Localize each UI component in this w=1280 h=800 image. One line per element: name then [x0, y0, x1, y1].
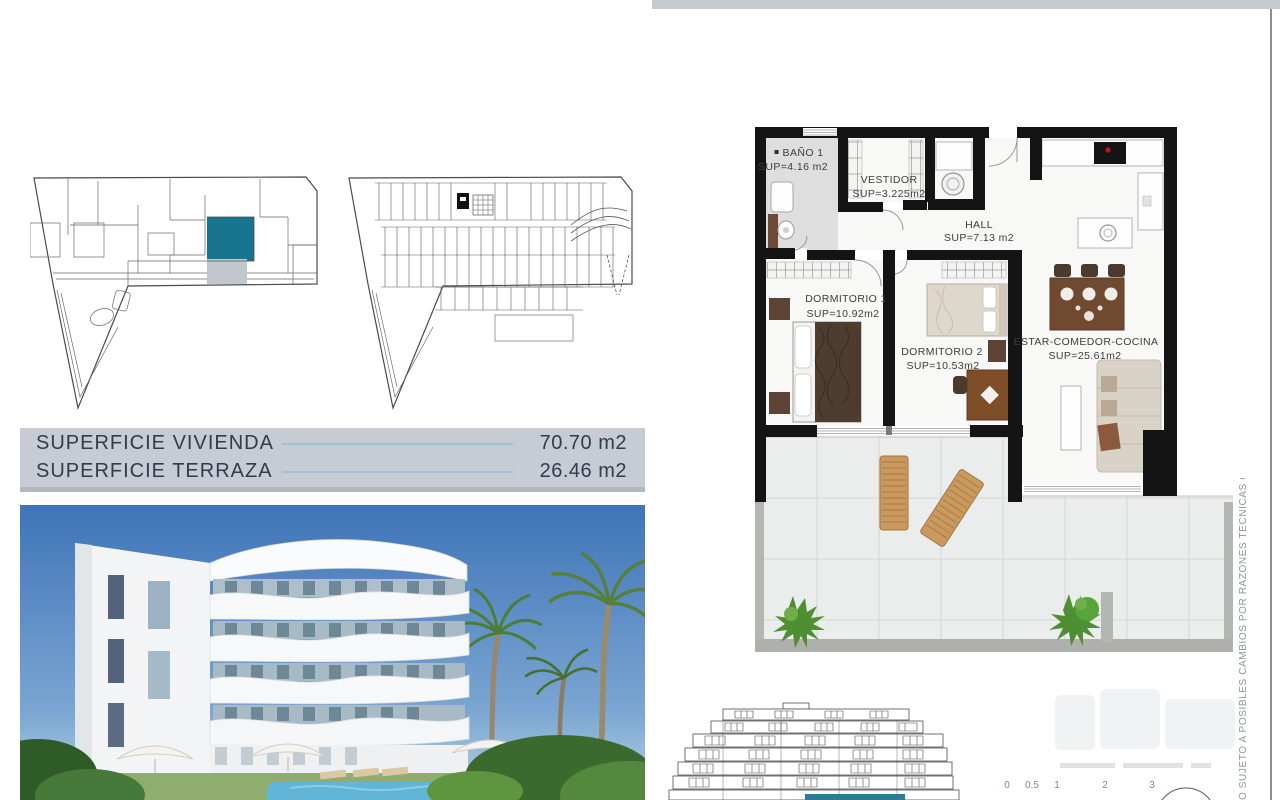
top-divider-bar	[652, 0, 1280, 9]
room-name: BAÑO 1	[783, 147, 824, 159]
scale-tick: 2	[1102, 780, 1108, 791]
room-sup-estar: SUP=25.61m2	[1049, 350, 1122, 362]
room-sup-hall: SUP=7.13 m2	[944, 232, 1014, 244]
right-border-rule	[1270, 9, 1272, 800]
room-sup-dormitorio2: SUP=10.53m2	[907, 360, 980, 372]
room-label-estar: ESTAR-COMEDOR-COCINA	[1014, 336, 1159, 348]
room-label-hall: HALL	[965, 219, 993, 231]
scale-tick: 0	[1004, 780, 1010, 791]
area-row-terraza: SUPERFICIE TERRAZA 26.46 m2	[36, 459, 627, 485]
dining-table	[1050, 264, 1125, 330]
room-label-dormitorio1: DORMITORIO 1	[805, 293, 887, 305]
site-plan-garage	[345, 165, 645, 437]
building-photo	[20, 505, 645, 800]
room-label-bano: BAÑO 1	[775, 147, 824, 159]
room-sup-vestidor: SUP=3.225m2	[853, 188, 926, 200]
area-value: 70.70 m2	[527, 432, 627, 455]
bano-bullet-icon	[775, 150, 779, 154]
watermark	[1055, 685, 1245, 770]
room-sup-dormitorio1: SUP=10.92m2	[807, 308, 880, 320]
highlighted-unit	[207, 217, 254, 261]
scale-tick: 3	[1149, 780, 1155, 791]
elevation-drawing	[665, 700, 965, 800]
area-label: SUPERFICIE TERRAZA	[36, 460, 278, 483]
brochure-page: SUPERFICIE VIVIENDA 70.70 m2 SUPERFICIE …	[0, 0, 1280, 800]
site-plan-highlighted	[30, 165, 330, 437]
scale-tick: 1	[1054, 780, 1060, 791]
room-label-dormitorio2: DORMITORIO 2	[901, 346, 983, 358]
area-leader-line	[282, 443, 513, 445]
room-label-vestidor: VESTIDOR	[861, 174, 918, 186]
terrace-unit-gray	[207, 259, 247, 284]
room-sup-bano: SUP=4.16 m2	[758, 161, 828, 173]
area-summary: SUPERFICIE VIVIENDA 70.70 m2 SUPERFICIE …	[20, 428, 645, 492]
floor-plan: BAÑO 1 SUP=4.16 m2 VESTIDOR SUP=3.225m2 …	[745, 118, 1235, 663]
area-value: 26.46 m2	[527, 460, 627, 483]
highlighted-floor-band	[805, 794, 905, 800]
scale-tick: 0.5	[1025, 780, 1039, 791]
disclaimer-vertical-text: O SUJETO A POSIBLES CAMBIOS POR RAZONES …	[1238, 478, 1254, 800]
area-label: SUPERFICIE VIVIENDA	[36, 432, 278, 455]
area-row-vivienda: SUPERFICIE VIVIENDA 70.70 m2	[36, 431, 627, 457]
area-leader-line	[282, 471, 513, 473]
